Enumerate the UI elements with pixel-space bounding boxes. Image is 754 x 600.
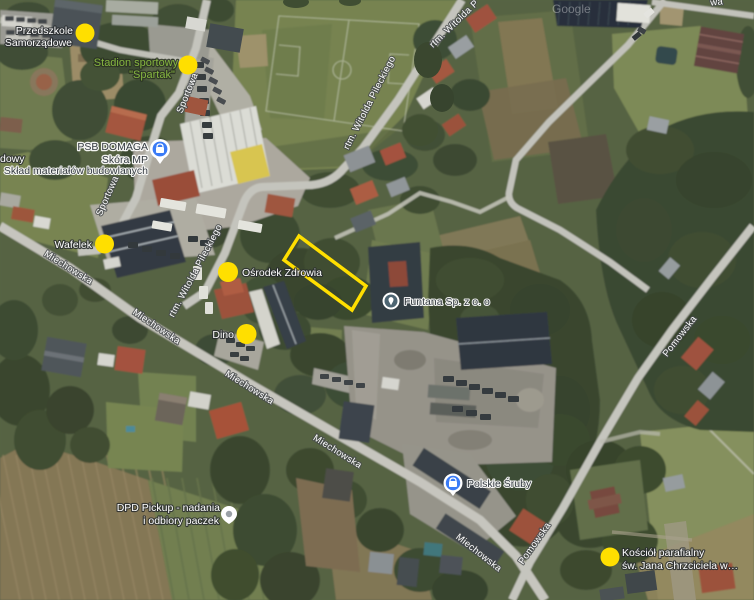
svg-text:Przedszkole: Przedszkole	[16, 25, 73, 37]
svg-text:"Spartak": "Spartak"	[129, 69, 175, 81]
svg-text:Wafelek: Wafelek	[54, 239, 92, 251]
svg-text:i odbiory paczek: i odbiory paczek	[143, 515, 220, 527]
svg-text:Skład materiałów budowlanych: Skład materiałów budowlanych	[4, 165, 148, 177]
svg-text:Polskie Śruby: Polskie Śruby	[467, 477, 532, 490]
svg-text:Ośrodek Zdrowia: Ośrodek Zdrowia	[242, 267, 322, 279]
svg-text:Dino: Dino	[212, 329, 234, 341]
svg-text:dowy: dowy	[0, 153, 25, 165]
svg-text:Stadion sportowy: Stadion sportowy	[94, 57, 179, 69]
svg-text:Samorządowe: Samorządowe	[5, 37, 72, 49]
svg-text:wa: wa	[709, 0, 724, 9]
svg-text:św. Jana Chrzciciela w…: św. Jana Chrzciciela w…	[622, 560, 738, 572]
svg-text:Kościół parafialny: Kościół parafialny	[622, 547, 705, 559]
svg-text:Google: Google	[552, 2, 591, 16]
svg-text:Funtana Sp. z o. o: Funtana Sp. z o. o	[404, 296, 490, 308]
svg-text:DPD Pickup - nadania: DPD Pickup - nadania	[117, 502, 220, 514]
svg-text:PSB DOMAGA: PSB DOMAGA	[77, 141, 148, 153]
